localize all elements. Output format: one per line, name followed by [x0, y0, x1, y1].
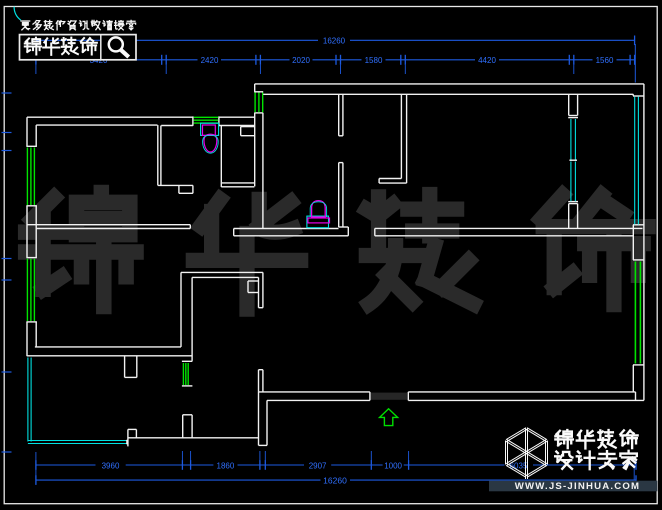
svg-text:3960: 3960: [102, 462, 120, 471]
svg-text:2020: 2020: [292, 56, 310, 65]
svg-text:4420: 4420: [478, 56, 496, 65]
svg-text:1580: 1580: [365, 56, 383, 65]
svg-text:16260: 16260: [323, 475, 347, 485]
svg-text:1000: 1000: [384, 462, 402, 471]
svg-text:1560: 1560: [596, 56, 614, 65]
svg-text:16260: 16260: [323, 37, 346, 46]
svg-text:1860: 1860: [217, 462, 235, 471]
svg-text:2907: 2907: [309, 462, 327, 471]
svg-text:WWW.JS-JINHUA.COM: WWW.JS-JINHUA.COM: [515, 481, 640, 492]
svg-text:2420: 2420: [201, 56, 219, 65]
